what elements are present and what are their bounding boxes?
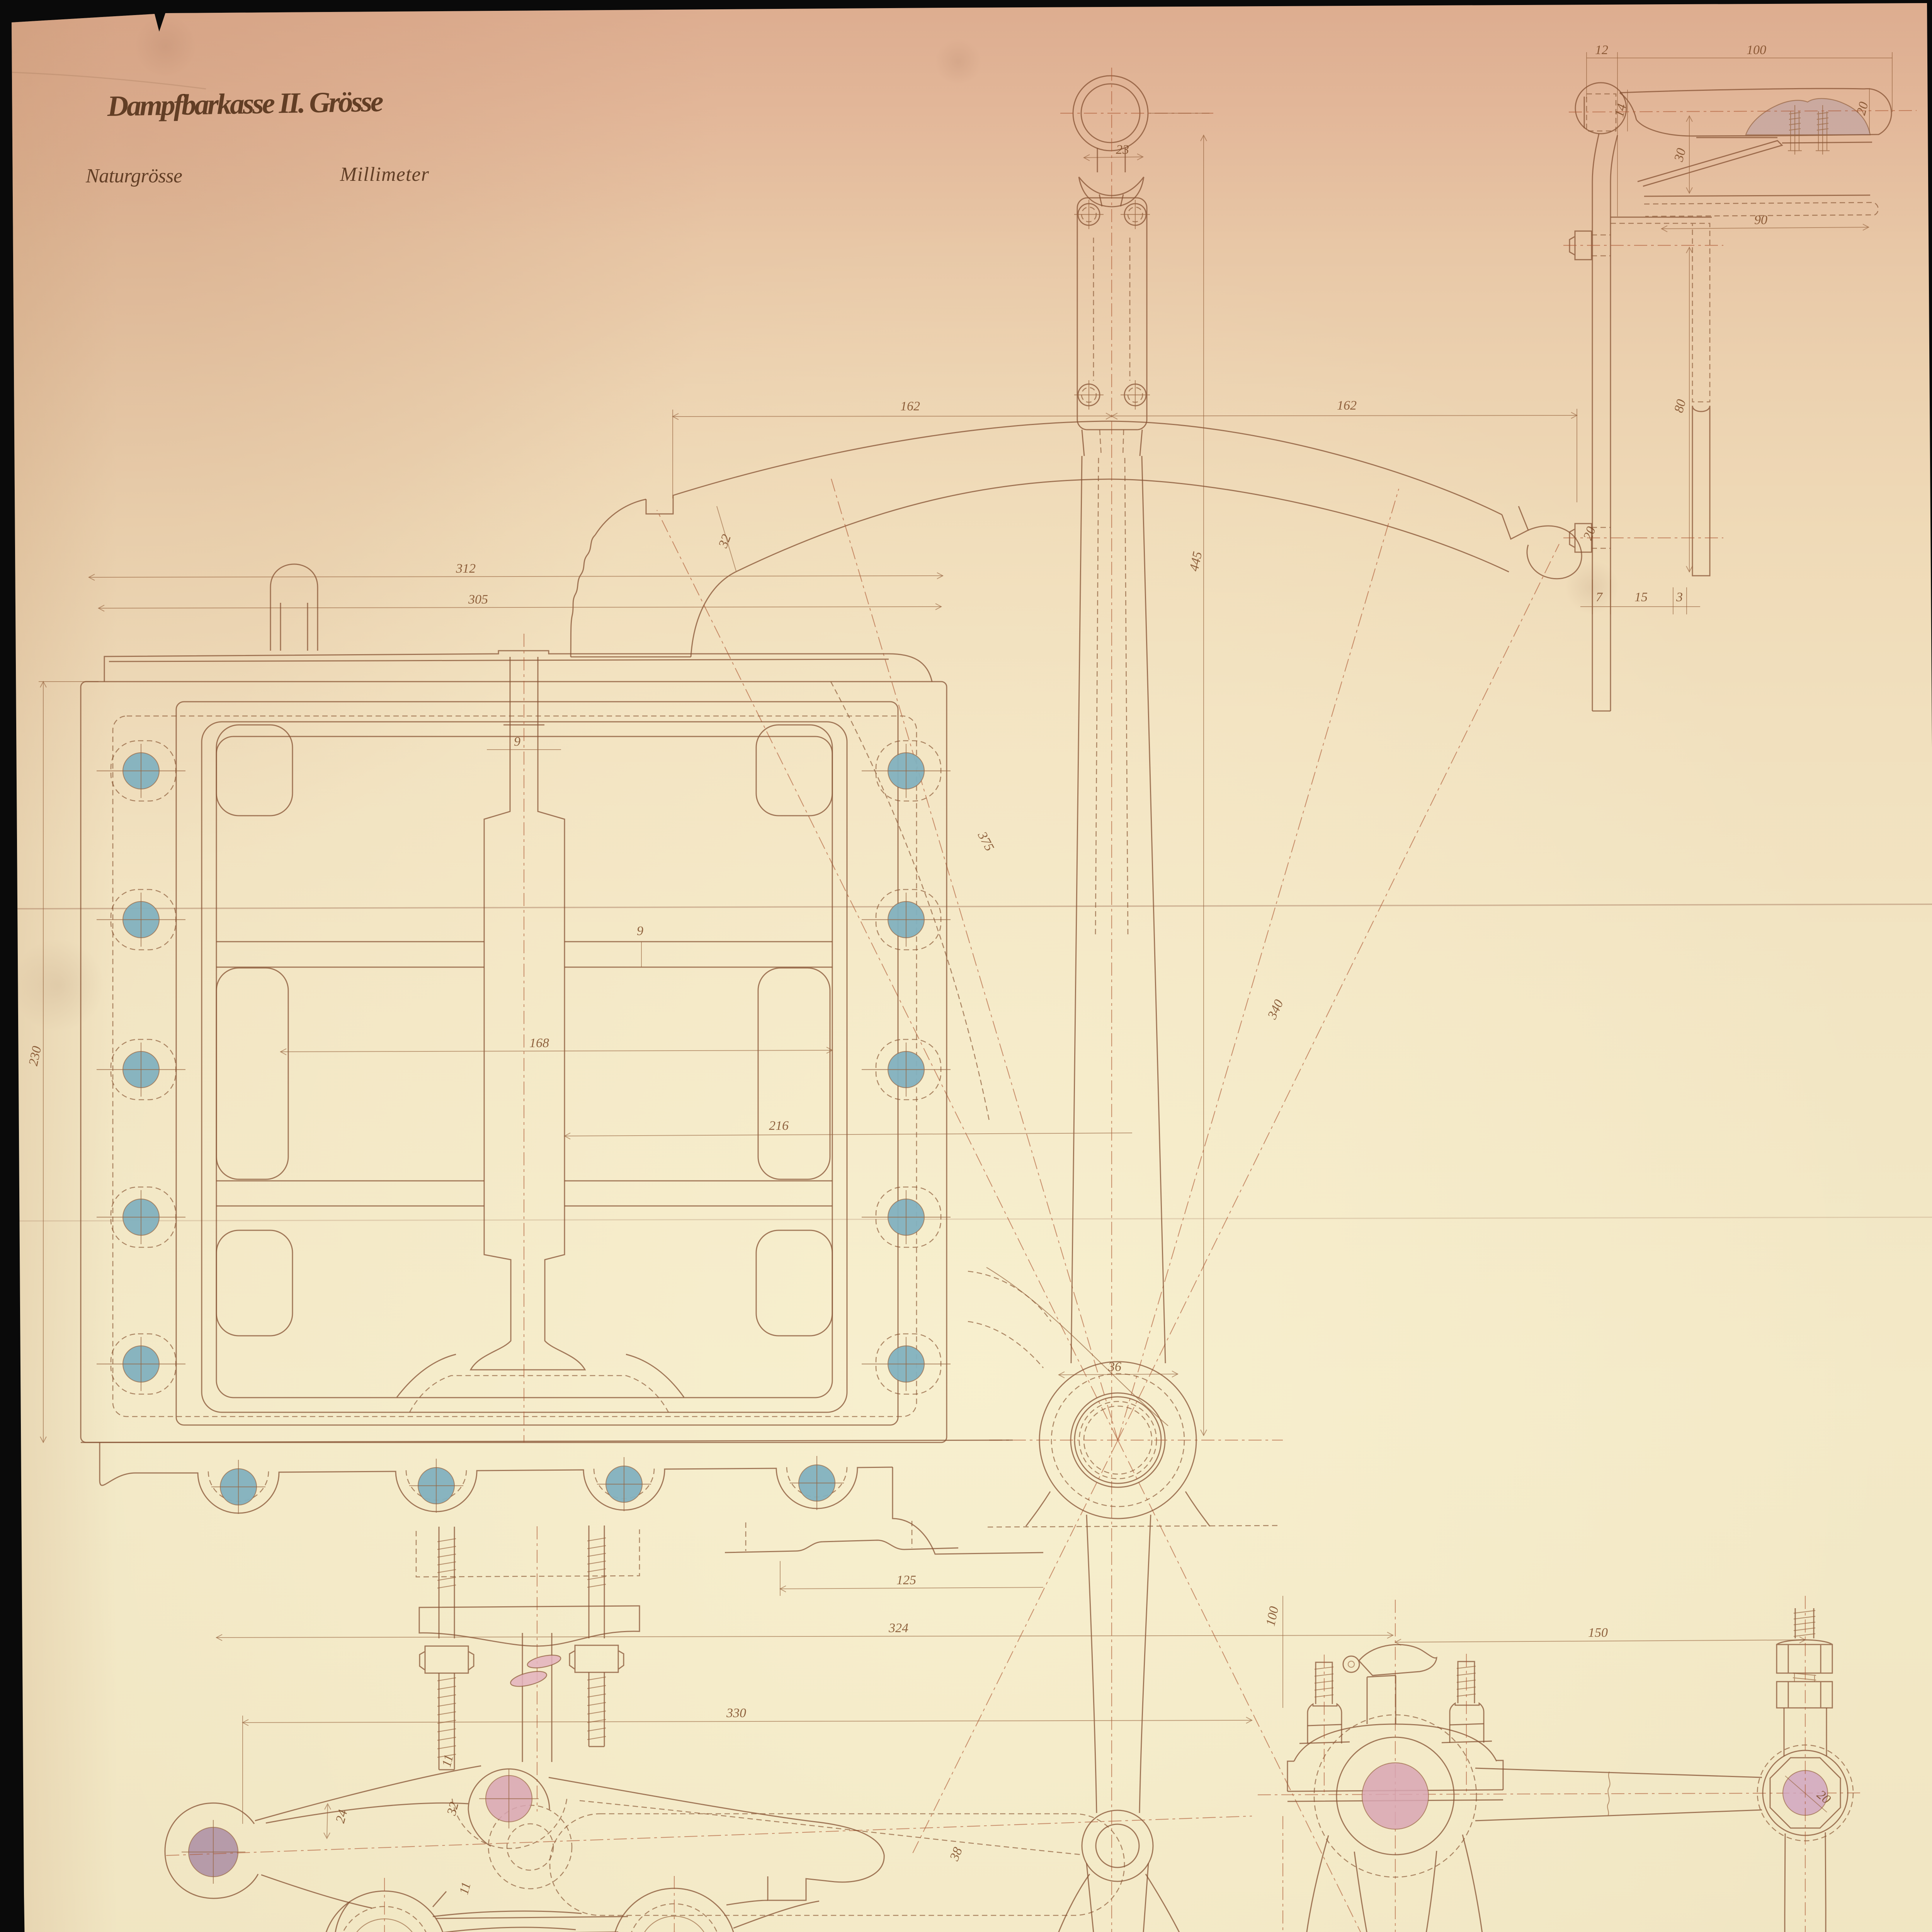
svg-text:100: 100 [1747, 43, 1766, 57]
svg-text:168: 168 [529, 1036, 549, 1050]
svg-text:23: 23 [1116, 143, 1129, 157]
svg-text:312: 312 [456, 561, 476, 576]
svg-text:162: 162 [900, 399, 920, 413]
svg-text:Millimeter: Millimeter [340, 163, 429, 185]
svg-text:330: 330 [726, 1706, 746, 1720]
svg-text:12: 12 [1595, 43, 1608, 57]
svg-text:305: 305 [468, 592, 488, 607]
svg-text:Dampfbarkasse II. Grösse: Dampfbarkasse II. Grösse [107, 85, 384, 122]
svg-text:9: 9 [637, 924, 643, 938]
svg-text:7: 7 [1596, 590, 1603, 604]
svg-text:90: 90 [1754, 213, 1767, 227]
svg-text:150: 150 [1588, 1626, 1608, 1640]
svg-text:9: 9 [514, 735, 520, 749]
svg-text:Naturgrösse: Naturgrösse [85, 165, 182, 187]
svg-text:15: 15 [1634, 590, 1648, 604]
svg-text:324: 324 [888, 1621, 908, 1635]
svg-text:125: 125 [896, 1573, 916, 1587]
svg-text:162: 162 [1337, 398, 1357, 413]
svg-text:3: 3 [1676, 590, 1683, 604]
svg-text:216: 216 [769, 1119, 789, 1133]
